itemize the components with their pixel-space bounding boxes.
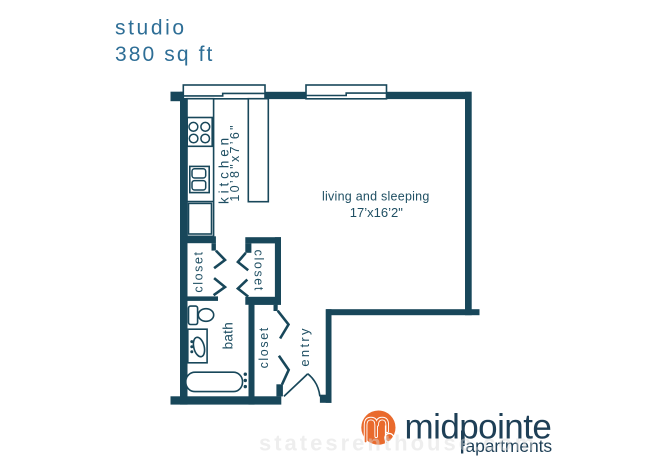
svg-text:living and sleeping: living and sleeping	[322, 189, 430, 203]
svg-text:380 sq ft: 380 sq ft	[115, 43, 214, 66]
svg-text:statesrenthouse.com: statesrenthouse.com	[259, 430, 537, 455]
svg-text:studio: studio	[115, 17, 187, 40]
svg-text:entry: entry	[297, 326, 312, 366]
svg-text:10’8"x7’6": 10’8"x7’6"	[228, 123, 242, 201]
svg-text:closet: closet	[191, 250, 205, 292]
svg-text:17’x16’2": 17’x16’2"	[350, 205, 403, 220]
svg-text:bath: bath	[221, 322, 236, 349]
svg-text:closet: closet	[257, 326, 271, 368]
svg-text:closet: closet	[252, 250, 266, 292]
